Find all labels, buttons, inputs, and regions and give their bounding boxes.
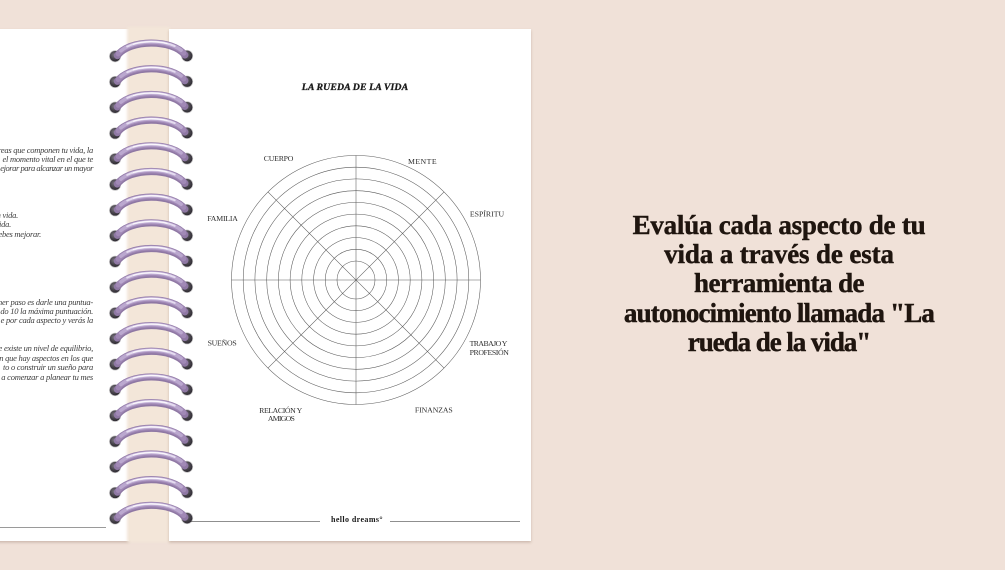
svg-text:FINANZAS: FINANZAS [415,406,453,415]
svg-text:AMIGOS: AMIGOS [268,414,295,423]
svg-text:TRABAJO Y: TRABAJO Y [470,339,508,348]
svg-text:CUERPO: CUERPO [264,154,294,163]
svg-text:PROFESIÓN: PROFESIÓN [470,347,510,357]
svg-text:SUEÑOS: SUEÑOS [208,338,237,348]
svg-text:ESPÍRITU: ESPÍRITU [470,209,505,219]
svg-text:FAMILIA: FAMILIA [207,214,238,223]
svg-text:MENTE: MENTE [408,157,437,166]
